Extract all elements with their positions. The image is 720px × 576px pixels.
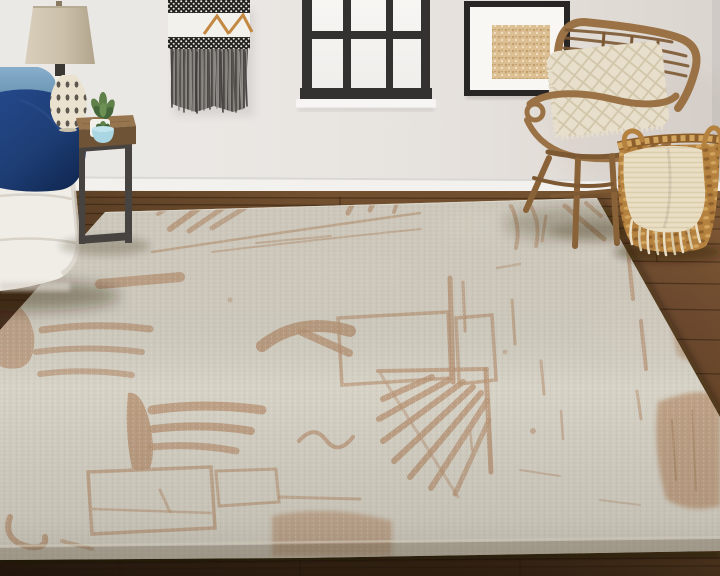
lamp-shade <box>25 7 95 64</box>
living-room-photo <box>0 0 720 576</box>
lamp-neck <box>55 64 65 76</box>
lamp-foot <box>59 128 77 132</box>
hanging-band-top <box>168 0 250 13</box>
bowl-rim <box>92 126 114 132</box>
art-texture <box>492 25 550 79</box>
sill-shadow <box>298 108 434 111</box>
chair-pillow-pattern <box>546 40 670 138</box>
window-glass <box>302 0 430 98</box>
window <box>296 0 436 111</box>
wall-hanging <box>168 0 254 116</box>
sofa-skirt-shadow <box>0 282 70 291</box>
hanging-band-bottom <box>168 37 250 49</box>
throw-knit-texture <box>623 146 705 233</box>
chair-pillow <box>546 40 670 138</box>
window-sill <box>296 99 436 108</box>
